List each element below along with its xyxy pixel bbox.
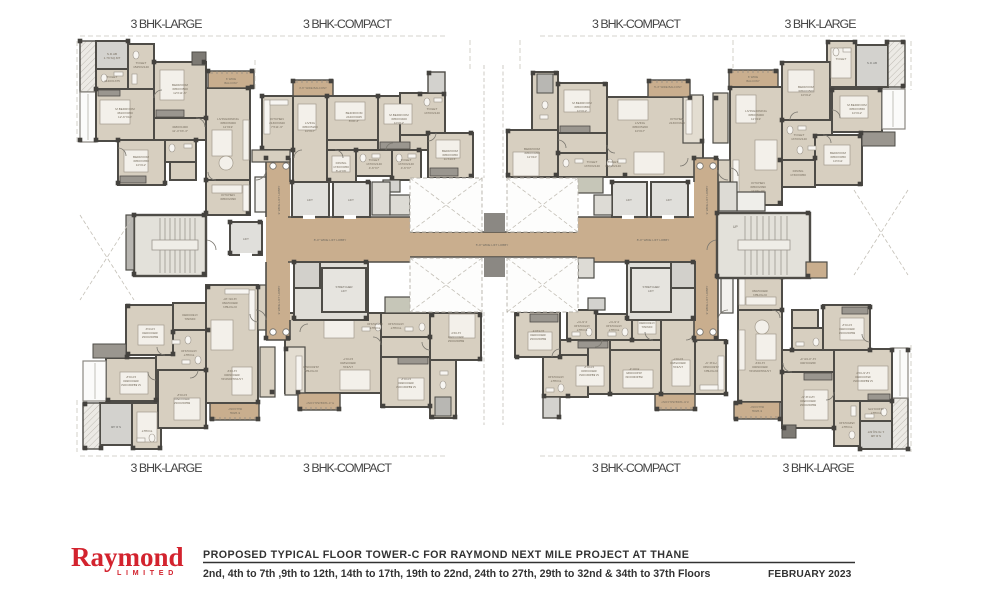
svg-text:10'X12': 10'X12' [801,93,812,97]
svg-text:10'X12': 10'X12' [852,111,863,115]
svg-text:8'-4"X6': 8'-4"X6' [336,169,347,173]
svg-text:LIFT: LIFT [243,237,249,241]
svg-text:9' WIDE LIFT LOBBY: 9' WIDE LIFT LOBBY [705,186,709,215]
svg-text:PROPOSED TYPICAL FLOOR TOWER-C: PROPOSED TYPICAL FLOOR TOWER-C FOR RAYMO… [203,549,689,561]
svg-text:11'X19': 11'X19' [751,117,761,121]
svg-text:FEBRUARY 2023: FEBRUARY 2023 [768,569,852,580]
svg-text:12'X11'-6": 12'X11'-6" [173,91,187,95]
svg-text:1370X2140: 1370X2140 [791,137,807,141]
svg-text:1730X3050: 1730X3050 [790,173,806,177]
svg-text:10'X17': 10'X17' [305,129,316,133]
svg-text:3 BHK-COMPACT: 3 BHK-COMPACT [592,17,681,31]
svg-text:3 BHK-COMPACT: 3 BHK-COMPACT [592,461,681,475]
svg-text:9' WIDE LIFT LOBBY: 9' WIDE LIFT LOBBY [277,286,281,315]
svg-text:2130X3320: 2130X3320 [669,121,685,125]
svg-text:8'-0" WIDE LIFT LOBBY: 8'-0" WIDE LIFT LOBBY [637,238,669,242]
svg-text:TOILET: TOILET [836,57,847,61]
svg-text:11'X10'3": 11'X10'3" [444,157,457,161]
svg-text:8'-0" WIDE LIFT LOBBY: 8'-0" WIDE LIFT LOBBY [314,238,346,242]
svg-text:4'-6"X7': 4'-6"X7' [369,166,380,170]
svg-text:11'X19': 11'X19' [223,125,233,129]
svg-text:9' WIDE LIFT LOBBY: 9' WIDE LIFT LOBBY [705,286,709,315]
svg-text:1525X2140: 1525X2140 [133,65,149,69]
svg-text:4'-6"X7': 4'-6"X7' [401,166,412,170]
svg-text:10'X12': 10'X12' [136,163,147,167]
svg-text:3 BHK-COMPACT: 3 BHK-COMPACT [303,461,392,475]
svg-text:3 BHK-LARGE: 3 BHK-LARGE [131,461,203,475]
svg-text:3 BHK-LARGE: 3 BHK-LARGE [785,17,857,31]
svg-text:10'X12': 10'X12' [394,121,405,125]
svg-text:5'-9" WIDE LIFT LOBBY: 5'-9" WIDE LIFT LOBBY [476,243,508,247]
svg-text:3 BHK-LARGE: 3 BHK-LARGE [131,17,203,31]
svg-text:BALCONY: BALCONY [746,79,760,83]
svg-text:UP: UP [733,225,738,229]
svg-text:2nd, 4th to 7th ,9th to 12th,: 2nd, 4th to 7th ,9th to 12th, 14th to 17… [203,568,710,580]
svg-text:LIFT: LIFT [341,289,347,293]
svg-text:LIFT: LIFT [626,198,632,202]
svg-text:3 BHK-LARGE: 3 BHK-LARGE [783,461,855,475]
svg-text:LIMITED: LIMITED [117,568,178,577]
svg-text:12'-6"X10': 12'-6"X10' [118,115,132,119]
svg-text:7'X11'-6": 7'X11'-6" [271,125,283,129]
svg-text:S.D.AB: S.D.AB [867,61,877,65]
svg-text:1370X2140: 1370X2140 [605,164,621,168]
svg-text:BALCONY: BALCONY [224,81,238,85]
svg-text:3 BHK-COMPACT: 3 BHK-COMPACT [303,17,392,31]
svg-text:10'X11': 10'X11' [833,159,843,163]
svg-text:5'-4" WIDE BALCONY: 5'-4" WIDE BALCONY [654,85,682,89]
svg-text:LIFT: LIFT [348,198,354,202]
svg-text:1.79 SQ.MT: 1.79 SQ.MT [104,56,121,60]
svg-text:3'-6" WIDE BALCONY: 3'-6" WIDE BALCONY [299,86,327,90]
svg-text:LIFT: LIFT [648,289,654,293]
svg-text:11'-4"X3'-3": 11'-4"X3'-3" [172,129,188,133]
svg-text:8'X8'-3": 8'X8'-3" [349,119,360,123]
svg-text:10'X12': 10'X12' [577,109,588,113]
svg-text:9' WIDE LIFT LOBBY: 9' WIDE LIFT LOBBY [277,186,281,215]
svg-text:11'X10': 11'X10' [527,155,537,159]
svg-text:3050X2090: 3050X2090 [220,197,236,201]
svg-text:1370X2140: 1370X2140 [584,164,600,168]
svg-text:10'X17': 10'X17' [635,129,646,133]
svg-text:LIFT: LIFT [307,198,313,202]
svg-text:1370X2140: 1370X2140 [424,111,440,115]
svg-text:LIFT: LIFT [666,198,672,202]
svg-text:2140X1375: 2140X1375 [104,79,120,83]
